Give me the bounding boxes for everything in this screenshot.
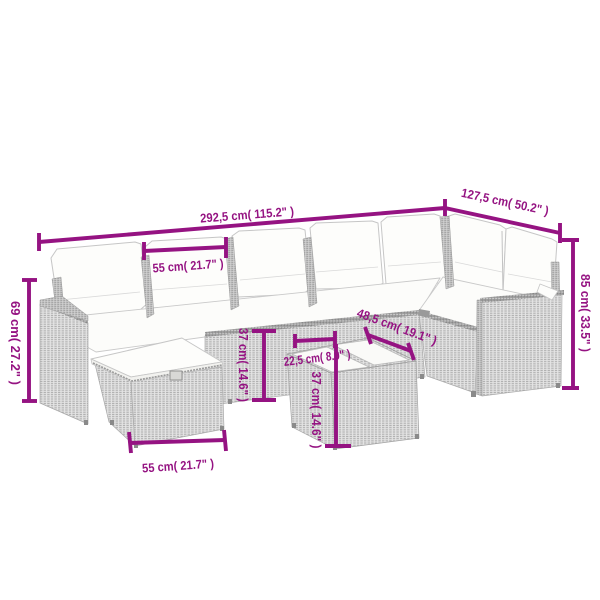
svg-text:37 cm( 14.6" ): 37 cm( 14.6" ) xyxy=(309,372,323,449)
svg-text:69 cm( 27.2" ): 69 cm( 27.2" ) xyxy=(8,301,22,385)
svg-text:37 cm( 14.6" ): 37 cm( 14.6" ) xyxy=(236,328,250,402)
svg-text:85 cm( 33.5" ): 85 cm( 33.5" ) xyxy=(578,274,592,352)
